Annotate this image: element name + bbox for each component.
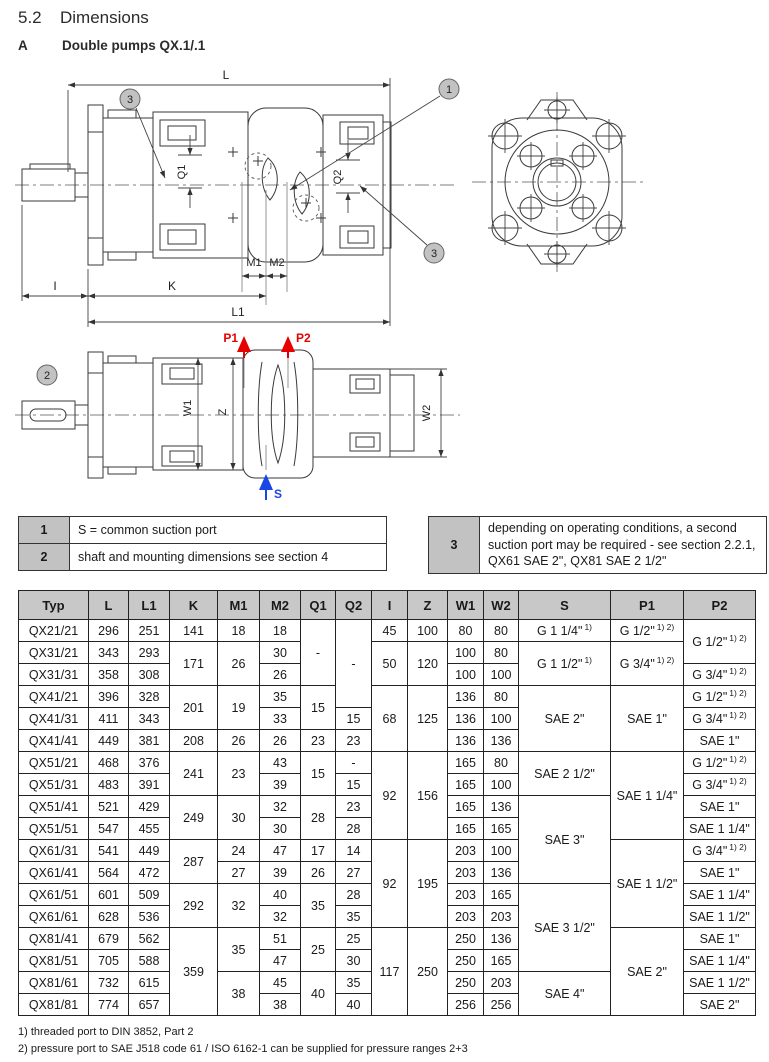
dimension-table-wrap: TypLL1KM1M2Q1Q2IZW1W2SP1P2 QX21/21296251… xyxy=(18,590,756,1016)
table-cell: 203 xyxy=(484,972,519,994)
table-cell: 30 xyxy=(260,642,301,664)
legend-right: 3 depending on operating conditions, a s… xyxy=(428,516,767,574)
table-cell: 588 xyxy=(129,950,170,972)
table-cell: QX61/41 xyxy=(19,862,89,884)
table-cell: G 1 1/4"1) xyxy=(519,620,611,642)
legend-text: depending on operating conditions, a sec… xyxy=(480,517,767,574)
table-cell: 120 xyxy=(408,642,448,686)
callout-3-number: 3 xyxy=(127,94,133,106)
table-cell: 547 xyxy=(89,818,129,840)
table-cell: 483 xyxy=(89,774,129,796)
table-cell: - xyxy=(336,620,372,708)
table-cell: 47 xyxy=(260,950,301,972)
table-cell: 35 xyxy=(260,686,301,708)
table-cell: 165 xyxy=(484,884,519,906)
table-cell: 80 xyxy=(484,642,519,664)
column-header: Q2 xyxy=(336,591,372,620)
table-cell: QX51/31 xyxy=(19,774,89,796)
table-cell: 27 xyxy=(336,862,372,884)
port-label-S: S xyxy=(274,487,282,501)
table-cell: QX51/21 xyxy=(19,752,89,774)
table-cell: QX31/31 xyxy=(19,664,89,686)
table-cell: G 1/2"1) 2) xyxy=(684,686,756,708)
table-cell: 39 xyxy=(260,862,301,884)
table-cell: G 3/4"1) 2) xyxy=(684,708,756,730)
table-cell: 32 xyxy=(260,906,301,928)
table-cell: 28 xyxy=(336,818,372,840)
dim-label-Q1: Q1 xyxy=(176,165,188,180)
table-cell: 251 xyxy=(129,620,170,642)
legend-text: shaft and mounting dimensions see sectio… xyxy=(70,544,387,571)
table-cell: 23 xyxy=(336,730,372,752)
table-cell: SAE 1 1/4" xyxy=(684,818,756,840)
table-cell: 40 xyxy=(260,884,301,906)
subsection-letter: A xyxy=(18,38,62,53)
table-cell: 26 xyxy=(218,730,260,752)
legend-row-1: 1 S = common suction port xyxy=(19,517,387,544)
table-row: QX51/21468376241234315-9215616580SAE 2 1… xyxy=(19,752,756,774)
table-cell: QX31/21 xyxy=(19,642,89,664)
table-cell: 80 xyxy=(484,752,519,774)
table-cell: 391 xyxy=(129,774,170,796)
table-cell: 165 xyxy=(448,752,484,774)
legend-number: 3 xyxy=(429,517,480,574)
legend-number: 1 xyxy=(19,517,70,544)
table-cell: G 1/2"1) 2) xyxy=(684,752,756,774)
subsection-title: ADouble pumps QX.1/.1 xyxy=(18,38,205,53)
table-cell: QX81/41 xyxy=(19,928,89,950)
section-title: 5.2Dimensions xyxy=(18,8,149,28)
table-cell: 38 xyxy=(260,994,301,1016)
table-cell: QX61/51 xyxy=(19,884,89,906)
legend-text: S = common suction port xyxy=(70,517,387,544)
table-cell: 136 xyxy=(448,686,484,708)
table-cell: 358 xyxy=(89,664,129,686)
table-cell: 455 xyxy=(129,818,170,840)
dim-label-M1: M1 xyxy=(246,257,261,269)
column-header: K xyxy=(170,591,218,620)
table-cell: 45 xyxy=(260,972,301,994)
column-header: M1 xyxy=(218,591,260,620)
table-cell: 449 xyxy=(89,730,129,752)
table-cell: 468 xyxy=(89,752,129,774)
table-cell: 615 xyxy=(129,972,170,994)
table-cell: 429 xyxy=(129,796,170,818)
table-cell: 100 xyxy=(448,664,484,686)
dim-label-M2: M2 xyxy=(269,257,284,269)
table-cell: 92 xyxy=(372,840,408,928)
table-cell: 564 xyxy=(89,862,129,884)
table-cell: 26 xyxy=(260,730,301,752)
table-cell: SAE 3" xyxy=(519,796,611,884)
table-cell: 24 xyxy=(218,840,260,862)
table-cell: QX21/21 xyxy=(19,620,89,642)
column-header: S xyxy=(519,591,611,620)
table-cell: 195 xyxy=(408,840,448,928)
table-cell: 201 xyxy=(170,686,218,730)
table-cell: 308 xyxy=(129,664,170,686)
table-cell: G 3/4"1) 2) xyxy=(684,840,756,862)
table-cell: 203 xyxy=(448,906,484,928)
table-cell: SAE 3 1/2" xyxy=(519,884,611,972)
table-cell: 250 xyxy=(448,928,484,950)
table-cell: 35 xyxy=(301,884,336,928)
table-cell: 80 xyxy=(484,620,519,642)
table-cell: 601 xyxy=(89,884,129,906)
table-cell: 100 xyxy=(484,840,519,862)
column-header: W2 xyxy=(484,591,519,620)
table-cell: 30 xyxy=(218,796,260,840)
table-cell: 19 xyxy=(218,686,260,730)
table-cell: 165 xyxy=(448,796,484,818)
table-cell: SAE 1" xyxy=(684,730,756,752)
table-cell: 208 xyxy=(170,730,218,752)
table-cell: 165 xyxy=(484,950,519,972)
dim-label-L1: L1 xyxy=(231,305,245,319)
table-cell: 25 xyxy=(336,928,372,950)
table-cell: 165 xyxy=(484,818,519,840)
table-cell: 43 xyxy=(260,752,301,774)
table-cell: 25 xyxy=(301,928,336,972)
table-cell: 92 xyxy=(372,752,408,840)
port-label-P2: P2 xyxy=(296,331,311,345)
table-cell: 250 xyxy=(448,950,484,972)
table-cell: SAE 1 1/4" xyxy=(684,884,756,906)
column-header: W1 xyxy=(448,591,484,620)
table-row: QX61/315414492872447171492195203100SAE 1… xyxy=(19,840,756,862)
table-cell: 40 xyxy=(301,972,336,1016)
table-cell: 35 xyxy=(336,972,372,994)
table-cell: 203 xyxy=(448,862,484,884)
legend-left: 1 S = common suction port 2 shaft and mo… xyxy=(18,516,387,571)
table-cell: 249 xyxy=(170,796,218,840)
table-cell: 80 xyxy=(448,620,484,642)
table-cell: SAE 4" xyxy=(519,972,611,1016)
table-cell: 100 xyxy=(484,664,519,686)
table-cell: SAE 1" xyxy=(684,928,756,950)
table-cell: 15 xyxy=(336,774,372,796)
table-cell: 396 xyxy=(89,686,129,708)
table-cell: QX81/81 xyxy=(19,994,89,1016)
table-cell: 35 xyxy=(336,906,372,928)
table-cell: 562 xyxy=(129,928,170,950)
table-cell: 50 xyxy=(372,642,408,686)
table-cell: G 3/4"1) 2) xyxy=(684,774,756,796)
table-cell: 28 xyxy=(336,884,372,906)
footnote-1: 1) threaded port to DIN 3852, Part 2 xyxy=(18,1024,468,1041)
table-cell: 136 xyxy=(484,928,519,950)
side-view-drawing: L Q1 Q2 M1 M2 I xyxy=(15,68,459,327)
column-header: P1 xyxy=(611,591,684,620)
legend-row-2: 2 shaft and mounting dimensions see sect… xyxy=(19,544,387,571)
table-cell: 35 xyxy=(218,928,260,972)
table-cell: 296 xyxy=(89,620,129,642)
table-cell: 521 xyxy=(89,796,129,818)
table-cell: 376 xyxy=(129,752,170,774)
table-cell: G 3/4"1) 2) xyxy=(611,642,684,686)
table-cell: 293 xyxy=(129,642,170,664)
table-cell: 51 xyxy=(260,928,301,950)
table-cell: 774 xyxy=(89,994,129,1016)
legend-row-3: 3 depending on operating conditions, a s… xyxy=(429,517,767,574)
page: 5.2Dimensions ADouble pumps QX.1/.1 xyxy=(0,0,769,1062)
dim-label-W2: W2 xyxy=(421,405,433,422)
table-cell: 23 xyxy=(336,796,372,818)
section-title-text: Dimensions xyxy=(60,8,149,27)
table-cell: 47 xyxy=(260,840,301,862)
table-cell: 411 xyxy=(89,708,129,730)
dim-label-Z: Z xyxy=(217,408,229,415)
table-cell: QX81/61 xyxy=(19,972,89,994)
front-view-drawing xyxy=(472,92,644,272)
table-cell: 80 xyxy=(484,686,519,708)
table-cell: 14 xyxy=(336,840,372,862)
table-row: QX21/212962511411818--451008080G 1 1/4"1… xyxy=(19,620,756,642)
table-cell: 100 xyxy=(448,642,484,664)
table-cell: 241 xyxy=(170,752,218,796)
table-cell: 509 xyxy=(129,884,170,906)
table-header-row: TypLL1KM1M2Q1Q2IZW1W2SP1P2 xyxy=(19,591,756,620)
technical-drawing: L Q1 Q2 M1 M2 I xyxy=(0,60,769,510)
port-label-P1: P1 xyxy=(223,331,238,345)
callout-2-number: 2 xyxy=(44,370,50,382)
table-cell: 32 xyxy=(260,796,301,818)
table-cell: SAE 1" xyxy=(684,796,756,818)
table-cell: 100 xyxy=(408,620,448,642)
table-cell: 165 xyxy=(448,774,484,796)
table-cell: 18 xyxy=(260,620,301,642)
table-cell: 732 xyxy=(89,972,129,994)
table-cell: SAE 2" xyxy=(684,994,756,1016)
column-header: Typ xyxy=(19,591,89,620)
table-cell: 136 xyxy=(448,708,484,730)
table-row: QX81/4167956235935512525117250250136SAE … xyxy=(19,928,756,950)
dimension-table: TypLL1KM1M2Q1Q2IZW1W2SP1P2 QX21/21296251… xyxy=(18,590,756,1016)
table-cell: SAE 2" xyxy=(611,928,684,1016)
table-cell: 18 xyxy=(218,620,260,642)
table-cell: 156 xyxy=(408,752,448,840)
column-header: I xyxy=(372,591,408,620)
dim-label-Q2: Q2 xyxy=(332,170,344,185)
table-cell: 45 xyxy=(372,620,408,642)
table-cell: QX41/31 xyxy=(19,708,89,730)
table-cell: 136 xyxy=(484,862,519,884)
legend-number: 2 xyxy=(19,544,70,571)
table-cell: SAE 1" xyxy=(684,862,756,884)
table-cell: G 3/4"1) 2) xyxy=(684,664,756,686)
table-cell: 23 xyxy=(218,752,260,796)
table-cell: SAE 1 1/4" xyxy=(684,950,756,972)
table-cell: 32 xyxy=(218,884,260,928)
table-cell: 30 xyxy=(260,818,301,840)
column-header: Z xyxy=(408,591,448,620)
table-cell: 15 xyxy=(301,686,336,730)
table-cell: 141 xyxy=(170,620,218,642)
callout-3-left: 3 xyxy=(120,89,165,178)
table-cell: 359 xyxy=(170,928,218,1016)
table-cell: 28 xyxy=(301,796,336,840)
table-cell: 287 xyxy=(170,840,218,884)
table-cell: SAE 1 1/2" xyxy=(684,972,756,994)
table-cell: 117 xyxy=(372,928,408,1016)
table-cell: 679 xyxy=(89,928,129,950)
table-cell: 343 xyxy=(89,642,129,664)
table-cell: 449 xyxy=(129,840,170,862)
table-cell: 15 xyxy=(301,752,336,796)
dim-label-K: K xyxy=(168,279,176,293)
table-cell: QX41/21 xyxy=(19,686,89,708)
table-cell: 26 xyxy=(301,862,336,884)
table-cell: QX51/41 xyxy=(19,796,89,818)
column-header: L1 xyxy=(129,591,170,620)
section-number: 5.2 xyxy=(18,8,60,28)
column-header: Q1 xyxy=(301,591,336,620)
table-cell: QX61/31 xyxy=(19,840,89,862)
footnotes: 1) threaded port to DIN 3852, Part 2 2) … xyxy=(18,1024,468,1057)
table-cell: SAE 1 1/4" xyxy=(611,752,684,840)
table-cell: 292 xyxy=(170,884,218,928)
table-cell: 26 xyxy=(218,642,260,686)
table-cell: QX41/41 xyxy=(19,730,89,752)
table-cell: 472 xyxy=(129,862,170,884)
table-cell: - xyxy=(336,752,372,774)
column-header: P2 xyxy=(684,591,756,620)
table-cell: SAE 2" xyxy=(519,686,611,752)
table-cell: 136 xyxy=(448,730,484,752)
table-cell: SAE 1 1/2" xyxy=(684,906,756,928)
table-cell: 657 xyxy=(129,994,170,1016)
table-cell: 381 xyxy=(129,730,170,752)
dim-label-W1: W1 xyxy=(182,400,194,417)
dim-label-I: I xyxy=(53,279,56,293)
table-cell: G 1 1/2"1) xyxy=(519,642,611,686)
table-cell: 256 xyxy=(448,994,484,1016)
table-cell: 15 xyxy=(336,708,372,730)
table-cell: - xyxy=(301,620,336,686)
table-cell: QX51/51 xyxy=(19,818,89,840)
table-cell: 23 xyxy=(301,730,336,752)
table-cell: 68 xyxy=(372,686,408,752)
callout-2: 2 xyxy=(37,365,57,385)
table-cell: 628 xyxy=(89,906,129,928)
column-header: M2 xyxy=(260,591,301,620)
table-cell: 136 xyxy=(484,796,519,818)
callout-3-right: 3 xyxy=(360,186,444,263)
table-cell: 250 xyxy=(448,972,484,994)
dim-label-L: L xyxy=(223,68,230,82)
table-cell: 100 xyxy=(484,774,519,796)
table-cell: 165 xyxy=(448,818,484,840)
table-row: QX41/213963282011935156812513680SAE 2"SA… xyxy=(19,686,756,708)
table-cell: 536 xyxy=(129,906,170,928)
table-cell: 328 xyxy=(129,686,170,708)
table-cell: 100 xyxy=(484,708,519,730)
table-cell: 541 xyxy=(89,840,129,862)
table-cell: 705 xyxy=(89,950,129,972)
table-cell: QX61/61 xyxy=(19,906,89,928)
table-cell: G 1/2"1) 2) xyxy=(611,620,684,642)
table-cell: SAE 1" xyxy=(611,686,684,752)
table-cell: 136 xyxy=(484,730,519,752)
table-cell: 203 xyxy=(448,840,484,862)
table-cell: 203 xyxy=(448,884,484,906)
table-row: QX31/2134329317126305012010080G 1 1/2"1)… xyxy=(19,642,756,664)
callout-1-number: 1 xyxy=(446,84,452,96)
table-cell: 343 xyxy=(129,708,170,730)
table-cell: 26 xyxy=(260,664,301,686)
table-cell: 30 xyxy=(336,950,372,972)
table-cell: G 1/2"1) 2) xyxy=(684,620,756,664)
table-cell: QX81/51 xyxy=(19,950,89,972)
table-cell: 40 xyxy=(336,994,372,1016)
subsection-title-text: Double pumps QX.1/.1 xyxy=(62,38,205,53)
column-header: L xyxy=(89,591,129,620)
table-cell: SAE 1 1/2" xyxy=(611,840,684,928)
table-cell: 33 xyxy=(260,708,301,730)
table-cell: 125 xyxy=(408,686,448,752)
table-cell: 250 xyxy=(408,928,448,1016)
table-cell: 203 xyxy=(484,906,519,928)
table-cell: 17 xyxy=(301,840,336,862)
table-cell: 171 xyxy=(170,642,218,686)
table-cell: 38 xyxy=(218,972,260,1016)
footnote-2: 2) pressure port to SAE J518 code 61 / I… xyxy=(18,1041,468,1058)
table-cell: 256 xyxy=(484,994,519,1016)
table-cell: 27 xyxy=(218,862,260,884)
callout-3-number: 3 xyxy=(431,248,437,260)
table-cell: SAE 2 1/2" xyxy=(519,752,611,796)
table-cell: 39 xyxy=(260,774,301,796)
